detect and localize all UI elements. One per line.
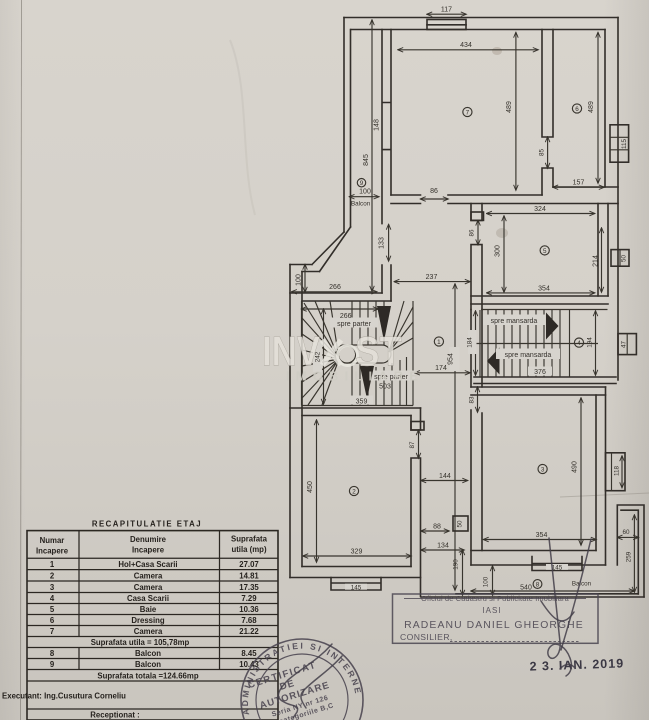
svg-text:489: 489	[588, 101, 595, 113]
svg-text:Executant: Ing.Cusutura Cornel: Executant: Ing.Cusutura Corneliu	[2, 692, 126, 701]
svg-text:133: 133	[379, 237, 386, 249]
svg-text:RADEANU DANIEL GHEORGHE: RADEANU DANIEL GHEORGHE	[404, 620, 584, 631]
svg-text:Suprafata totala =124.66mp: Suprafata totala =124.66mp	[97, 672, 198, 681]
svg-text:21.22: 21.22	[239, 627, 259, 636]
svg-text:60: 60	[622, 529, 630, 536]
svg-text:4: 4	[50, 594, 55, 603]
svg-text:Denumire: Denumire	[130, 535, 167, 544]
svg-text:RECAPITULATIE ETAJ: RECAPITULATIE ETAJ	[92, 520, 202, 529]
svg-text:Numar: Numar	[40, 536, 65, 545]
svg-text:354: 354	[536, 532, 548, 539]
svg-text:9: 9	[50, 660, 55, 669]
svg-text:540: 540	[520, 585, 532, 592]
svg-text:50: 50	[457, 520, 464, 528]
svg-text:88: 88	[433, 523, 441, 530]
svg-text:17.35: 17.35	[239, 583, 259, 592]
svg-text:10.36: 10.36	[239, 605, 259, 614]
svg-text:Balcon: Balcon	[572, 581, 592, 588]
svg-text:Dressing: Dressing	[131, 616, 165, 625]
svg-text:4: 4	[577, 340, 581, 347]
svg-text:8: 8	[50, 649, 55, 658]
svg-text:7.29: 7.29	[241, 594, 257, 603]
svg-text:1: 1	[50, 560, 55, 569]
svg-text:324: 324	[534, 206, 546, 213]
svg-text:117: 117	[441, 7, 452, 14]
svg-text:194: 194	[587, 337, 594, 348]
svg-text:85: 85	[539, 149, 546, 157]
svg-text:145: 145	[351, 585, 362, 592]
svg-text:3: 3	[541, 466, 545, 473]
svg-text:7: 7	[466, 109, 470, 116]
svg-text:954: 954	[448, 353, 455, 365]
svg-text:157: 157	[573, 180, 585, 187]
svg-text:2: 2	[352, 488, 356, 495]
svg-text:Baie: Baie	[140, 605, 157, 614]
svg-text:Receptionat :: Receptionat :	[90, 711, 139, 720]
svg-text:5: 5	[543, 248, 547, 255]
svg-text:86: 86	[469, 229, 476, 237]
svg-text:47: 47	[621, 341, 628, 349]
svg-text:Hol+Casa Scarii: Hol+Casa Scarii	[118, 560, 177, 569]
svg-text:8.45: 8.45	[241, 649, 257, 658]
svg-text:Balcon: Balcon	[135, 649, 161, 658]
svg-text:266: 266	[340, 313, 352, 320]
svg-text:83: 83	[469, 396, 476, 404]
svg-text:489: 489	[506, 101, 513, 113]
svg-text:259: 259	[626, 551, 633, 562]
svg-text:utila (mp): utila (mp)	[231, 545, 266, 554]
svg-text:Camera: Camera	[134, 627, 163, 636]
svg-text:Balcon: Balcon	[135, 660, 161, 669]
svg-text:450: 450	[307, 481, 314, 493]
svg-text:CONSILIER,: CONSILIER,	[400, 632, 453, 642]
svg-text:IASI: IASI	[482, 606, 501, 615]
svg-text:354: 354	[538, 286, 550, 293]
svg-text:214: 214	[593, 255, 600, 267]
svg-text:5: 5	[50, 605, 55, 614]
svg-text:266: 266	[329, 284, 341, 291]
svg-text:Camera: Camera	[134, 583, 163, 592]
svg-text:118: 118	[614, 465, 621, 476]
svg-text:100: 100	[483, 576, 490, 587]
svg-text:329: 329	[351, 548, 363, 555]
svg-text:115: 115	[621, 138, 628, 149]
svg-text:6: 6	[575, 106, 579, 113]
svg-text:100: 100	[296, 274, 303, 286]
svg-text:Balcon: Balcon	[351, 200, 371, 207]
svg-text:7: 7	[50, 627, 54, 636]
svg-text:237: 237	[426, 274, 438, 281]
svg-text:27.07: 27.07	[239, 560, 259, 569]
svg-text:14.81: 14.81	[239, 571, 259, 580]
svg-text:Suprafata: Suprafata	[231, 535, 268, 544]
svg-text:Incapere: Incapere	[132, 546, 165, 555]
svg-text:845: 845	[363, 154, 370, 166]
svg-text:2: 2	[50, 571, 55, 580]
svg-text:148: 148	[374, 119, 381, 131]
svg-text:Incapere: Incapere	[36, 547, 69, 556]
svg-text:503: 503	[379, 384, 391, 391]
svg-text:50: 50	[621, 255, 628, 263]
svg-text:184: 184	[467, 337, 474, 348]
svg-text:ST: ST	[355, 328, 402, 375]
svg-text:86: 86	[430, 188, 438, 195]
svg-text:8: 8	[536, 581, 540, 588]
svg-text:spre mansarda: spre mansarda	[491, 318, 538, 325]
svg-text:87: 87	[409, 441, 416, 449]
svg-text:190: 190	[453, 559, 460, 570]
svg-text:INV: INV	[262, 328, 320, 375]
svg-text:376: 376	[534, 369, 546, 376]
svg-text:145: 145	[552, 565, 563, 572]
svg-text:6: 6	[50, 616, 55, 625]
svg-text:Camera: Camera	[134, 571, 163, 580]
svg-text:1: 1	[437, 339, 441, 346]
svg-text:100: 100	[359, 189, 371, 196]
svg-text:7.68: 7.68	[241, 616, 257, 625]
svg-text:300: 300	[495, 245, 502, 257]
svg-text:Suprafata utila = 105,78mp: Suprafata utila = 105,78mp	[91, 638, 190, 647]
svg-text:134: 134	[437, 543, 449, 550]
svg-text:spre mansarda: spre mansarda	[505, 352, 552, 359]
svg-text:434: 434	[460, 42, 472, 49]
svg-text:3: 3	[50, 583, 55, 592]
svg-text:144: 144	[439, 473, 451, 480]
svg-text:Casa Scarii: Casa Scarii	[127, 594, 169, 603]
svg-text:174: 174	[435, 365, 447, 372]
svg-text:359: 359	[356, 399, 368, 406]
svg-text:490: 490	[572, 461, 579, 473]
